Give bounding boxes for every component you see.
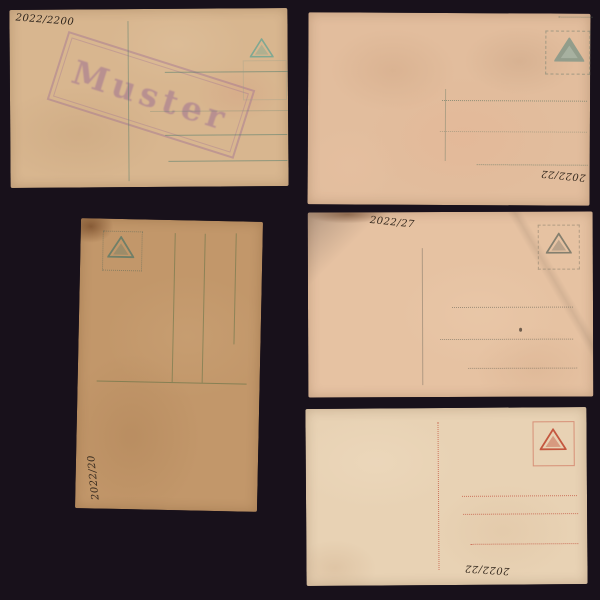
address-line [452, 307, 573, 308]
address-line [442, 100, 587, 102]
lot-number-handwriting: 2022/22 [540, 168, 586, 183]
ink-speck [519, 328, 522, 332]
address-line [440, 131, 587, 133]
triangle-logo-icon [546, 233, 572, 255]
address-line [477, 164, 588, 166]
triangle-logo-icon [540, 428, 567, 451]
lot-number-handwriting: 2022/22 [464, 562, 510, 576]
lot-number-handwriting: 2022/20 [86, 452, 102, 501]
address-line [470, 543, 578, 545]
address-line [172, 233, 176, 382]
divider-line [97, 380, 247, 384]
postcard-middle-right: 2022/27 [308, 212, 594, 398]
postcard-bottom-right: 2022/22 [305, 407, 587, 586]
address-line [440, 339, 573, 340]
photo-of-postcards: 2022/2200 Muster 2022/22 [0, 0, 600, 600]
address-line [468, 368, 577, 369]
postcard-middle-left: 2022/20 [75, 218, 263, 512]
lot-number-handwriting: 2022/27 [369, 215, 415, 230]
triangle-logo-icon [554, 38, 584, 63]
triangle-logo-icon [107, 236, 134, 260]
dotted-edge-line [558, 17, 592, 18]
divider-line [437, 422, 439, 570]
lot-number-handwriting: 2022/2200 [15, 12, 74, 28]
address-line [168, 160, 287, 162]
address-line [233, 233, 236, 344]
muster-stamp-text: Muster [68, 52, 235, 138]
address-line [202, 234, 206, 383]
postcard-top-left: 2022/2200 Muster [9, 8, 288, 188]
divider-line [422, 248, 423, 385]
triangle-logo-icon [250, 38, 274, 58]
muster-rubber-stamp: Muster [47, 31, 256, 159]
postcard-top-right: 2022/22 [307, 12, 590, 205]
address-line [463, 513, 578, 515]
stamp-box [243, 60, 287, 100]
address-line [462, 495, 577, 497]
